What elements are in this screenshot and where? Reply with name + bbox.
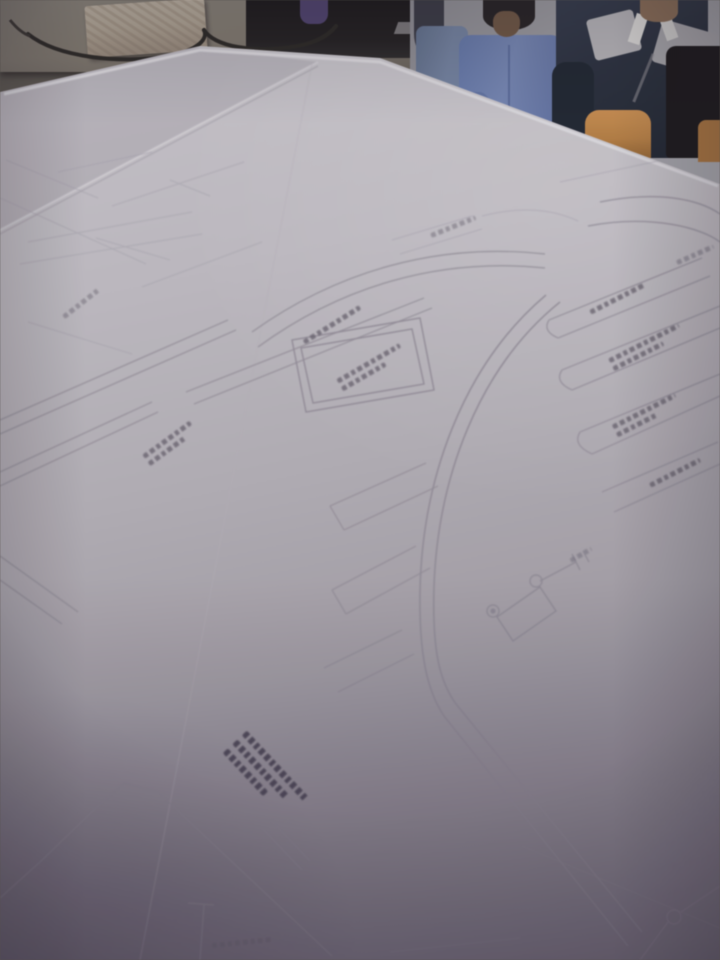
person-b-face [493,11,520,37]
side-seam-curve [420,295,642,946]
photo-garment-pattern-table [0,0,720,960]
photo-content [0,0,720,960]
orange-chair-back [698,120,720,162]
pattern-paper-sheets [0,0,720,960]
bottom-right-lines [390,846,720,960]
person-c-neck [640,0,678,22]
paper-sheet-edges [0,46,718,960]
left-seam-strips [0,298,432,624]
pattern-drawing [0,0,720,960]
center-piece-strips [252,251,545,692]
